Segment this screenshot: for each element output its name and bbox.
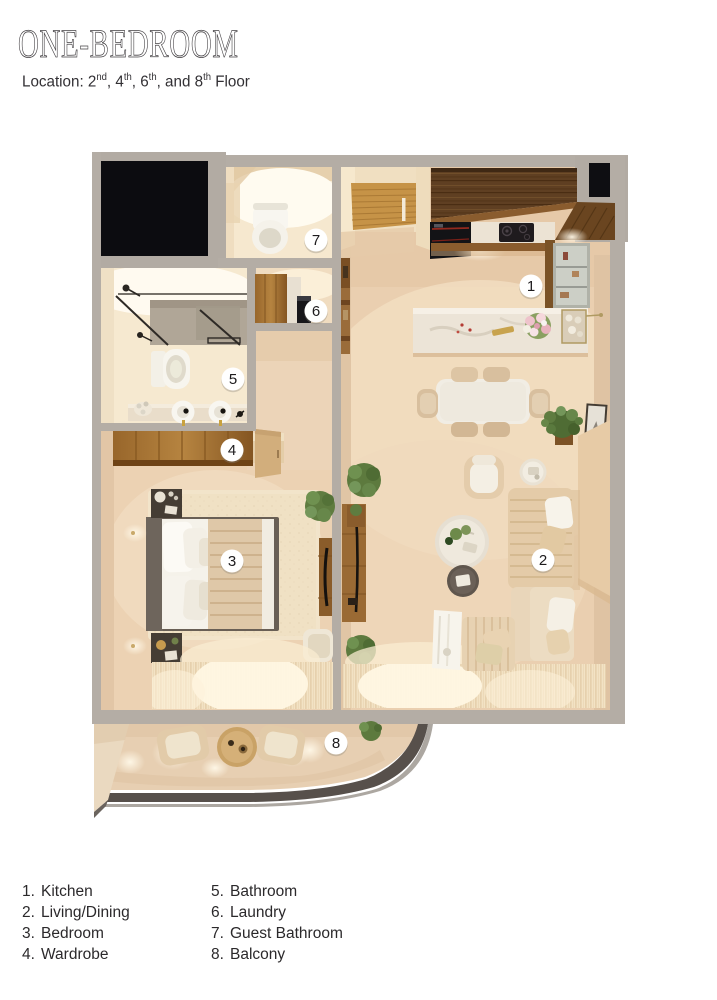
svg-text:7: 7 [312, 232, 320, 249]
svg-text:8: 8 [332, 735, 340, 752]
svg-text:3: 3 [228, 553, 236, 570]
svg-text:4: 4 [228, 442, 236, 459]
svg-text:1: 1 [527, 278, 535, 295]
svg-text:2: 2 [539, 552, 547, 569]
svg-text:6: 6 [312, 303, 320, 320]
svg-text:5: 5 [229, 371, 237, 388]
